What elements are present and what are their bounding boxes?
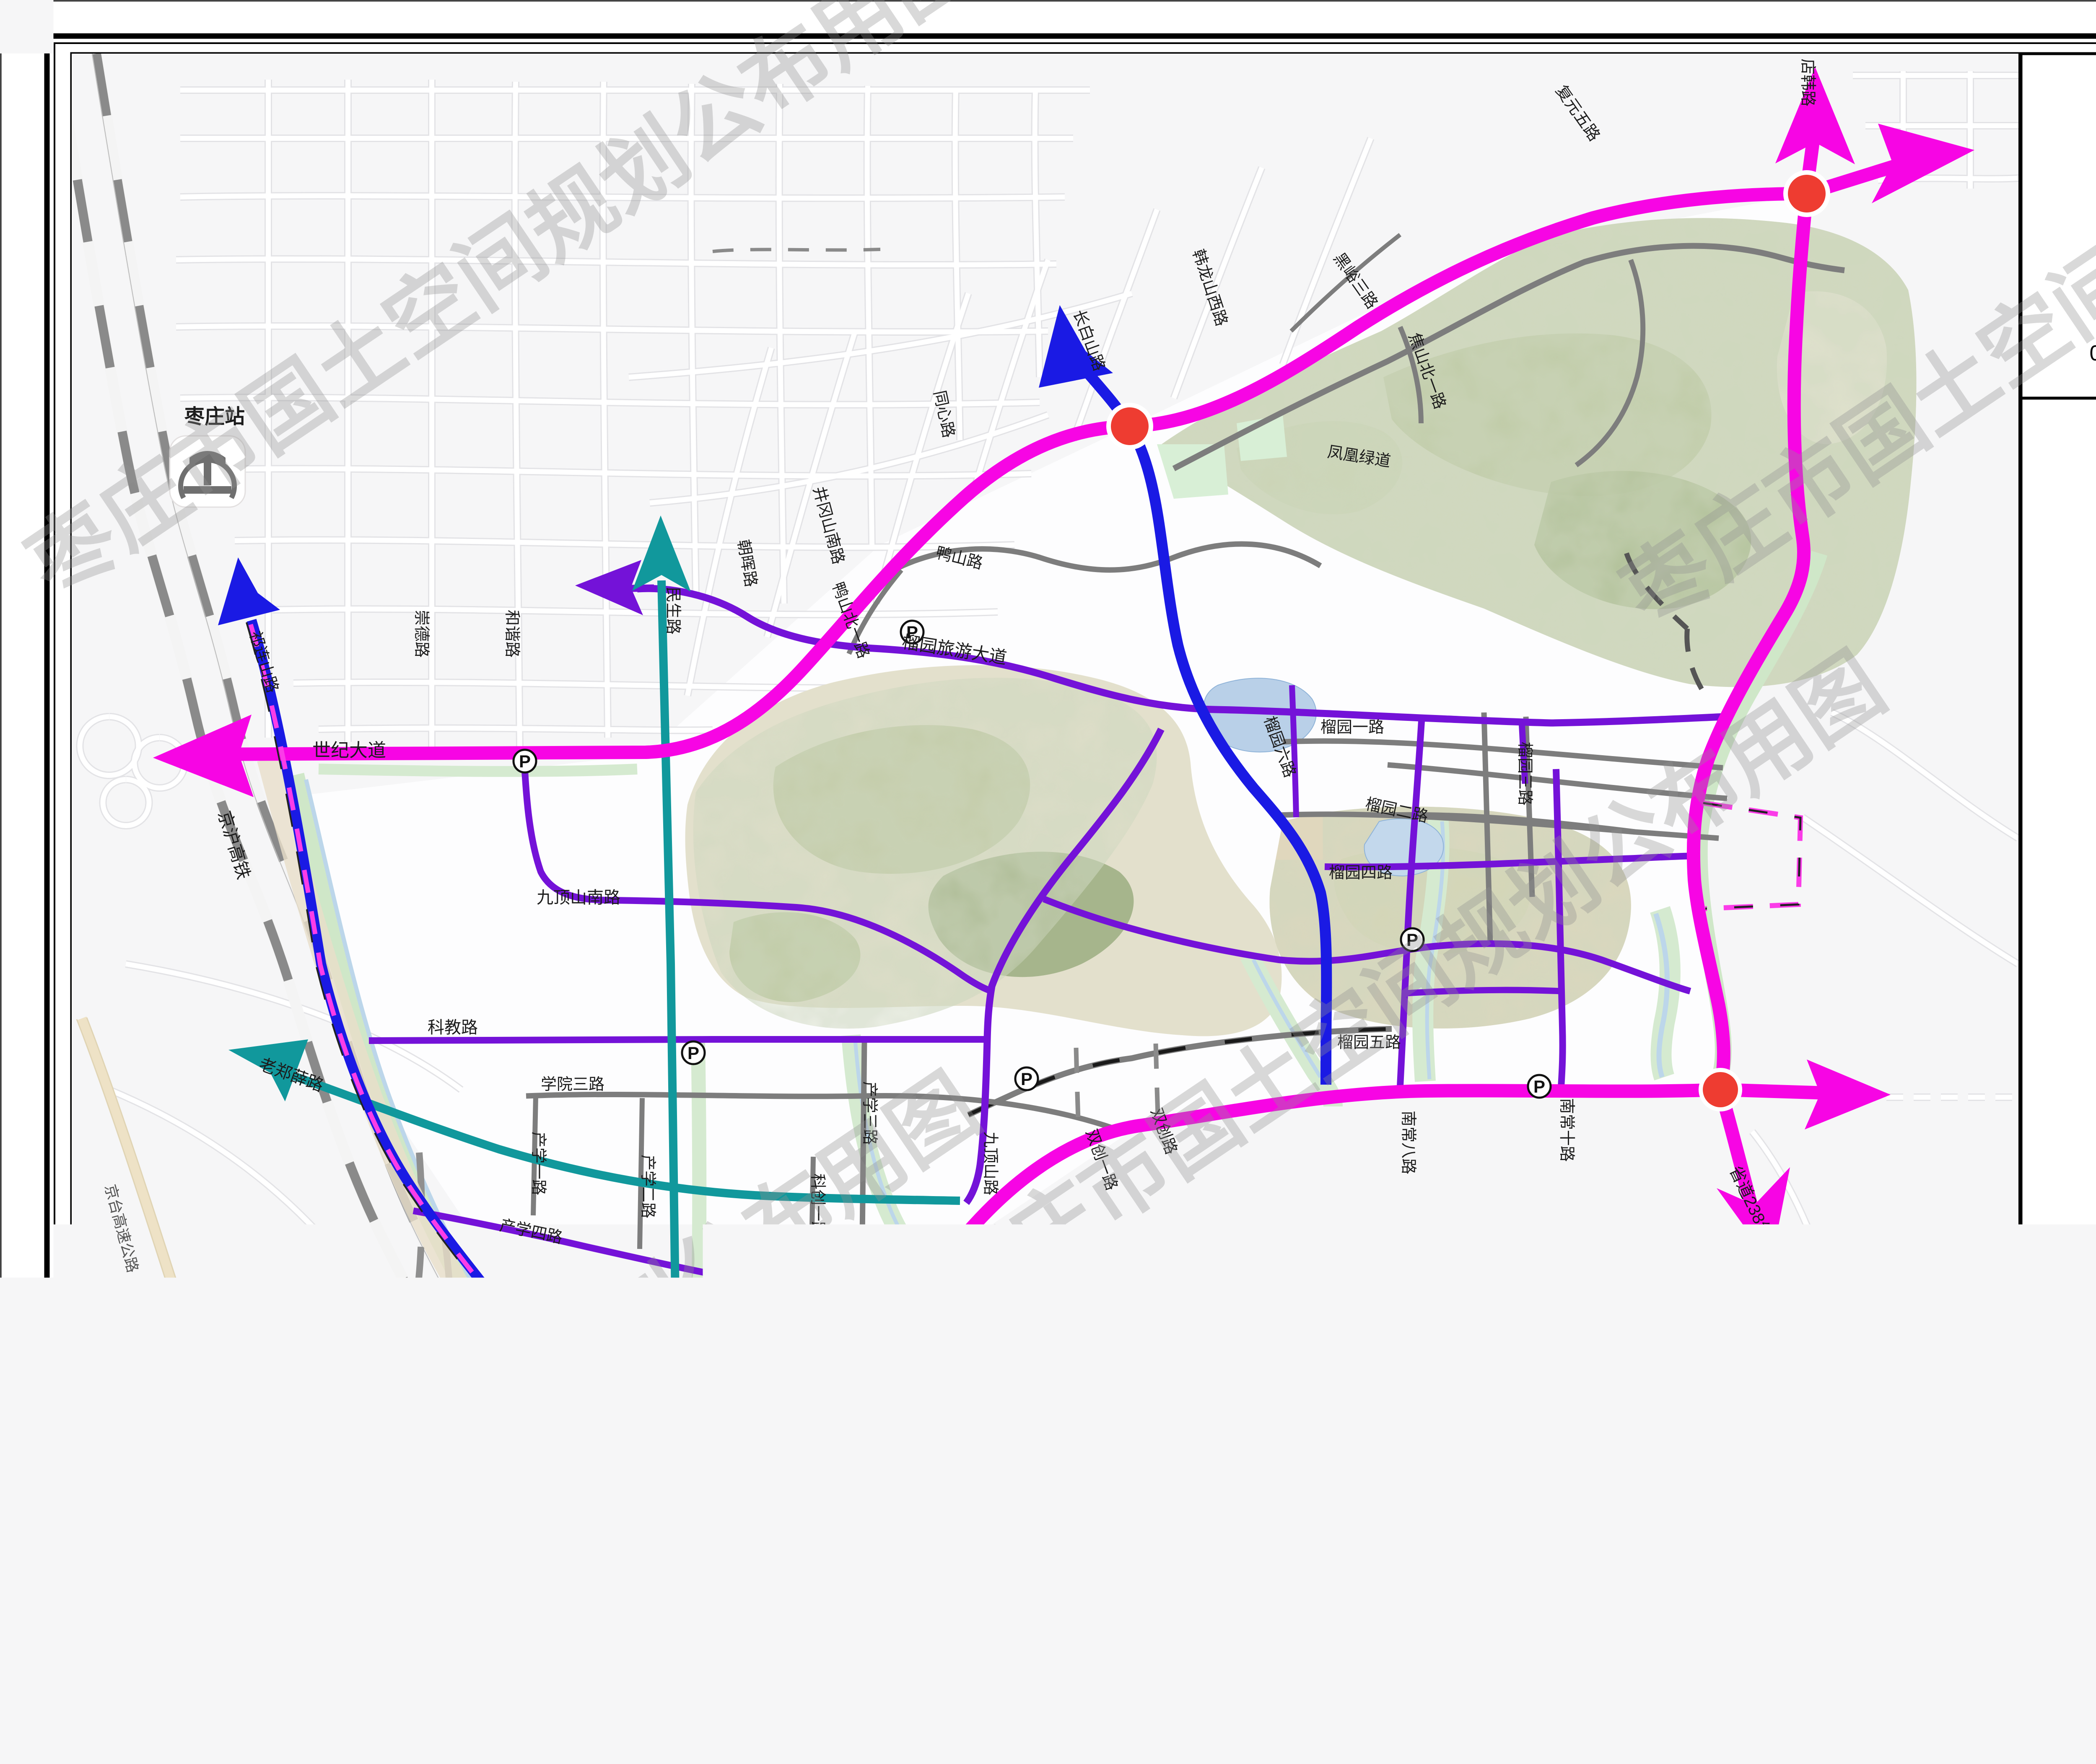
svg-text:枣庄市城乡规划设计研究院: 枣庄市城乡规划设计研究院	[1617, 1688, 1915, 1718]
svg-text:枣庄市自然资源和规划局: 枣庄市自然资源和规划局	[1617, 1612, 2016, 1655]
svg-text:南常八路: 南常八路	[1399, 1111, 1417, 1174]
svg-text:科教路: 科教路	[428, 1018, 478, 1037]
svg-text:——道路交通规划图: ——道路交通规划图	[853, 1664, 1337, 1710]
svg-text:民生路: 民生路	[664, 587, 682, 635]
svg-text:P: P	[687, 1043, 699, 1063]
svg-text:店韩路: 店韩路	[1799, 59, 1816, 106]
svg-text:崇德路: 崇德路	[412, 610, 430, 658]
svg-text:榴园四路: 榴园四路	[1329, 864, 1393, 882]
svg-text:世纪大道: 世纪大道	[312, 740, 386, 761]
svg-text:榴园三路: 榴园三路	[1516, 742, 1533, 806]
svg-text:榴园一路: 榴园一路	[1320, 719, 1384, 736]
svg-text:南常十路: 南常十路	[1558, 1098, 1575, 1162]
svg-text:产学二路: 产学二路	[639, 1155, 656, 1218]
svg-text:学院三路: 学院三路	[541, 1076, 604, 1093]
svg-text:九顶山南路: 九顶山南路	[537, 888, 620, 907]
svg-text:山东省城乡规划设计研究院有限公司: 山东省城乡规划设计研究院有限公司	[1617, 1660, 2013, 1690]
svg-text:P: P	[1021, 1069, 1032, 1089]
svg-text:产学一路: 产学一路	[529, 1132, 547, 1195]
svg-text:P: P	[1533, 1077, 1545, 1096]
svg-text:编 制 单 位：: 编 制 单 位：	[1362, 1669, 1609, 1710]
svg-text:组织编制机关：: 组织编制机关：	[1362, 1613, 1609, 1654]
svg-text:P: P	[519, 751, 531, 771]
svg-text:和谐路: 和谐路	[503, 610, 521, 658]
